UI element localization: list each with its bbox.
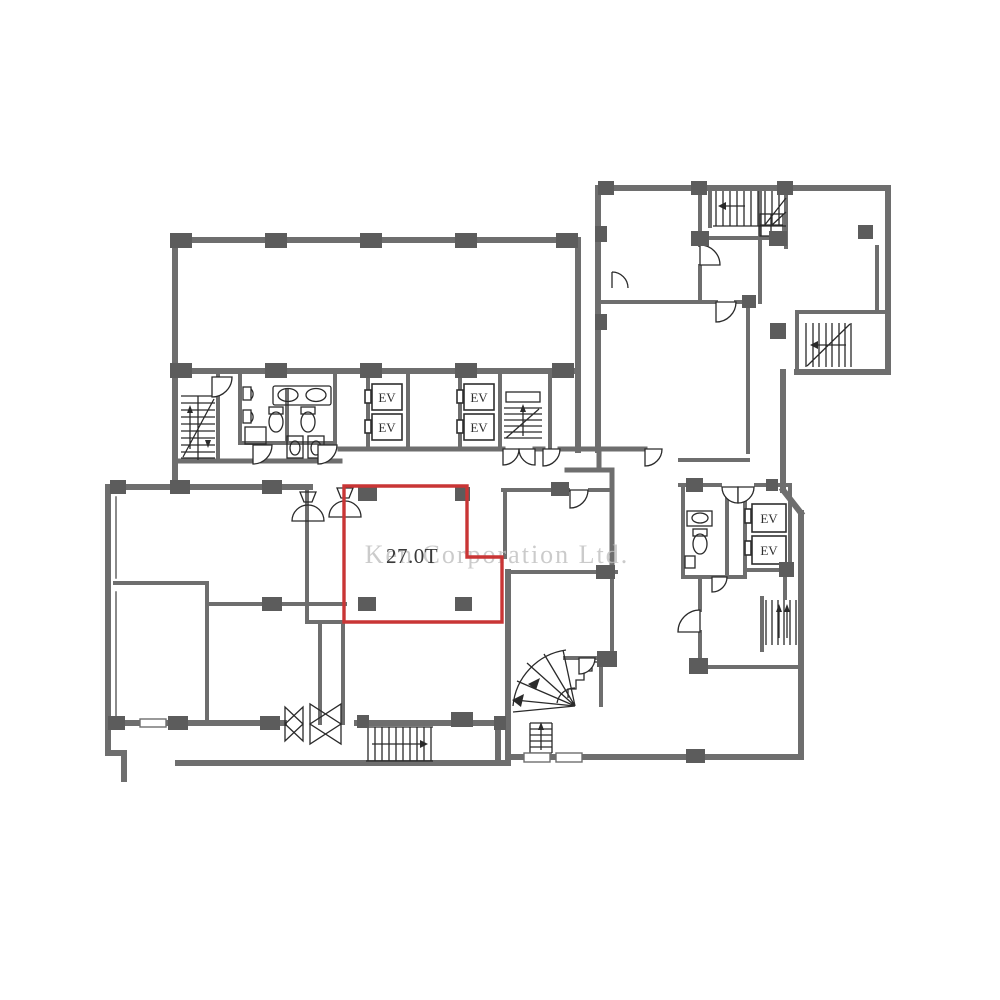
elevator-label: EV	[760, 511, 778, 526]
door-arc-icon	[519, 449, 535, 465]
door-arc-icon	[570, 490, 588, 508]
double-door-icon	[292, 488, 361, 521]
floor-plan-drawing: EV EV EV EV	[0, 0, 1000, 1000]
door-arc-icon	[612, 272, 628, 288]
stairs-icon	[713, 191, 786, 236]
stairs-icon	[504, 392, 542, 438]
door-arc-icon	[212, 377, 232, 397]
elevator-label: EV	[760, 543, 778, 558]
building-c-interior-walls	[503, 490, 616, 705]
elevator-label: EV	[470, 420, 488, 435]
elevator-label: EV	[378, 390, 396, 405]
door-arc-icon	[543, 449, 560, 466]
door-arc-icon	[645, 449, 662, 466]
lower-left-wing	[108, 487, 508, 779]
stairs-icon	[806, 323, 851, 367]
floor-plan-canvas: EV EV EV EV	[0, 0, 1000, 1000]
elevator-label: EV	[470, 390, 488, 405]
stairs-icon	[181, 396, 215, 460]
door-arc-icon	[712, 577, 727, 592]
entrance-door-icon	[285, 704, 341, 744]
stairs-icon	[530, 722, 552, 753]
door-arc-icon	[738, 487, 754, 503]
unit-area-label: 27.0T	[386, 544, 438, 568]
door-arc-icon	[700, 245, 720, 265]
door-arc-icon	[716, 302, 736, 322]
building-a: EV EV EV EV	[175, 240, 645, 572]
elevator-label: EV	[378, 420, 396, 435]
building-a-outer-walls	[175, 240, 578, 479]
toilet-fixtures-icon	[685, 511, 712, 568]
elevator-bank-left: EV EV EV EV	[365, 384, 494, 440]
building-b	[598, 188, 888, 513]
door-arc-icon	[722, 487, 738, 503]
elevator-bank-right: EV EV	[745, 504, 786, 564]
door-arc-icon	[503, 449, 519, 465]
door-arc-icon	[678, 610, 700, 632]
building-b-stair-room-walls	[700, 188, 888, 372]
lower-left-interior-walls	[115, 487, 345, 723]
stairs-icon	[766, 600, 796, 645]
stairs-icon	[366, 727, 433, 761]
building-b-interior-walls	[600, 188, 760, 460]
